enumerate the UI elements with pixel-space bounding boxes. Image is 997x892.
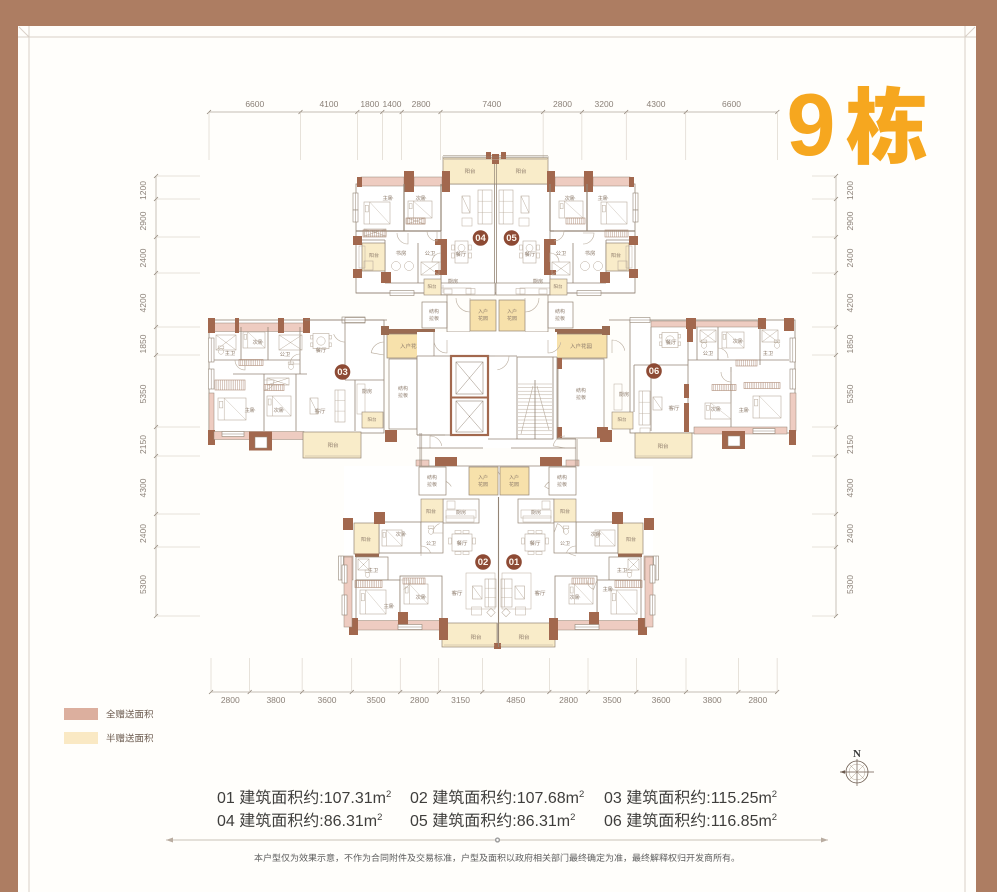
svg-text:主卫: 主卫 bbox=[225, 350, 235, 357]
svg-text:结构: 结构 bbox=[398, 385, 408, 392]
svg-text:05: 05 bbox=[506, 233, 517, 244]
svg-text:2900: 2900 bbox=[138, 211, 148, 230]
svg-text:花园: 花园 bbox=[478, 481, 488, 488]
svg-text:入户: 入户 bbox=[478, 474, 488, 481]
svg-text:主卫: 主卫 bbox=[617, 567, 627, 574]
svg-text:阳台: 阳台 bbox=[560, 508, 570, 515]
svg-text:4300: 4300 bbox=[845, 478, 855, 497]
svg-text:5350: 5350 bbox=[138, 384, 148, 403]
svg-text:2150: 2150 bbox=[845, 435, 855, 454]
svg-text:入户: 入户 bbox=[478, 308, 488, 315]
svg-text:2400: 2400 bbox=[138, 524, 148, 543]
svg-text:餐厅: 餐厅 bbox=[455, 250, 467, 258]
svg-text:1800: 1800 bbox=[360, 99, 379, 109]
svg-text:入户: 入户 bbox=[507, 308, 517, 315]
svg-text:客厅: 客厅 bbox=[534, 589, 546, 597]
svg-text:入户花园: 入户花园 bbox=[570, 342, 593, 350]
svg-text:阳台: 阳台 bbox=[470, 633, 482, 641]
svg-text:阳台: 阳台 bbox=[369, 252, 379, 259]
svg-text:4300: 4300 bbox=[138, 478, 148, 497]
svg-text:3500: 3500 bbox=[603, 695, 622, 705]
svg-text:02: 02 bbox=[478, 557, 489, 568]
svg-text:主卧: 主卧 bbox=[738, 406, 750, 414]
svg-text:花园: 花园 bbox=[509, 481, 519, 488]
svg-text:01: 01 bbox=[509, 557, 520, 568]
svg-text:结构: 结构 bbox=[429, 308, 439, 315]
svg-text:1400: 1400 bbox=[383, 99, 402, 109]
svg-text:4200: 4200 bbox=[138, 293, 148, 312]
svg-text:厨房: 厨房 bbox=[619, 391, 629, 398]
svg-text:阳台: 阳台 bbox=[618, 417, 627, 423]
svg-text:4200: 4200 bbox=[845, 293, 855, 312]
svg-text:阳台: 阳台 bbox=[426, 508, 436, 515]
svg-text:公卫: 公卫 bbox=[426, 540, 436, 547]
svg-text:餐厅: 餐厅 bbox=[315, 346, 327, 354]
svg-text:阳台: 阳台 bbox=[464, 167, 476, 175]
svg-text:3150: 3150 bbox=[451, 695, 470, 705]
svg-text:拉板: 拉板 bbox=[398, 392, 408, 399]
svg-text:1200: 1200 bbox=[845, 181, 855, 200]
svg-text:阳台: 阳台 bbox=[327, 441, 339, 449]
svg-text:1850: 1850 bbox=[138, 334, 148, 353]
svg-text:7400: 7400 bbox=[482, 99, 501, 109]
svg-text:主卧: 主卧 bbox=[602, 585, 614, 593]
svg-text:N: N bbox=[853, 748, 861, 760]
svg-text:拉板: 拉板 bbox=[557, 481, 567, 488]
svg-text:1200: 1200 bbox=[138, 181, 148, 200]
svg-text:2150: 2150 bbox=[138, 435, 148, 454]
svg-text:1850: 1850 bbox=[845, 334, 855, 353]
svg-text:阳台: 阳台 bbox=[626, 536, 636, 543]
svg-text:阳台: 阳台 bbox=[368, 417, 377, 423]
svg-text:06: 06 bbox=[649, 366, 660, 377]
svg-text:3800: 3800 bbox=[266, 695, 285, 705]
svg-text:04: 04 bbox=[475, 233, 486, 244]
svg-text:书房: 书房 bbox=[395, 249, 407, 257]
svg-text:次卧: 次卧 bbox=[273, 406, 285, 414]
svg-text:主卧: 主卧 bbox=[383, 602, 395, 610]
svg-text:入户: 入户 bbox=[509, 474, 519, 481]
svg-text:书房: 书房 bbox=[584, 249, 596, 257]
svg-text:次卧: 次卧 bbox=[732, 337, 744, 345]
svg-text:拉板: 拉板 bbox=[427, 481, 437, 488]
svg-text:全赠送面积: 全赠送面积 bbox=[106, 707, 154, 721]
svg-text:2800: 2800 bbox=[748, 695, 767, 705]
svg-text:3800: 3800 bbox=[703, 695, 722, 705]
svg-text:公卫: 公卫 bbox=[703, 350, 713, 357]
svg-text:2800: 2800 bbox=[221, 695, 240, 705]
svg-text:公卫: 公卫 bbox=[556, 250, 566, 257]
svg-text:厨房: 厨房 bbox=[448, 278, 458, 285]
svg-text:阳台: 阳台 bbox=[611, 252, 621, 259]
svg-text:餐厅: 餐厅 bbox=[456, 539, 468, 547]
svg-text:主卧: 主卧 bbox=[382, 194, 394, 202]
svg-text:9: 9 bbox=[787, 75, 836, 174]
svg-text:花园: 花园 bbox=[507, 315, 517, 322]
svg-text:2900: 2900 bbox=[845, 211, 855, 230]
svg-text:5350: 5350 bbox=[845, 384, 855, 403]
svg-text:2800: 2800 bbox=[559, 695, 578, 705]
svg-text:2400: 2400 bbox=[138, 248, 148, 267]
svg-text:次卧: 次卧 bbox=[252, 338, 264, 346]
svg-text:厨房: 厨房 bbox=[362, 388, 372, 395]
svg-text:次卧: 次卧 bbox=[569, 593, 581, 601]
svg-text:餐厅: 餐厅 bbox=[529, 539, 541, 547]
svg-text:3500: 3500 bbox=[367, 695, 386, 705]
svg-text:阳台: 阳台 bbox=[518, 633, 530, 641]
svg-text:次卧: 次卧 bbox=[395, 530, 407, 538]
svg-text:6600: 6600 bbox=[722, 99, 741, 109]
svg-text:3200: 3200 bbox=[595, 99, 614, 109]
svg-text:5300: 5300 bbox=[845, 575, 855, 594]
svg-text:主卫: 主卫 bbox=[763, 350, 773, 357]
svg-text:花园: 花园 bbox=[478, 315, 488, 322]
svg-text:客厅: 客厅 bbox=[668, 404, 680, 412]
svg-text:结构: 结构 bbox=[427, 474, 437, 481]
svg-text:2400: 2400 bbox=[845, 524, 855, 543]
svg-text:5300: 5300 bbox=[138, 575, 148, 594]
svg-text:3600: 3600 bbox=[318, 695, 337, 705]
svg-text:本户型仅为效果示意，不作为合同附件及交易标准，户型及面积以政: 本户型仅为效果示意，不作为合同附件及交易标准，户型及面积以政府相关部门最终确定为… bbox=[254, 851, 740, 864]
svg-text:阳台: 阳台 bbox=[554, 284, 563, 290]
svg-text:4100: 4100 bbox=[319, 99, 338, 109]
svg-text:公卫: 公卫 bbox=[560, 540, 570, 547]
svg-text:6600: 6600 bbox=[245, 99, 264, 109]
svg-text:2800: 2800 bbox=[553, 99, 572, 109]
svg-text:公卫: 公卫 bbox=[425, 250, 435, 257]
svg-text:结构: 结构 bbox=[576, 387, 586, 394]
svg-text:客厅: 客厅 bbox=[451, 589, 463, 597]
svg-text:4300: 4300 bbox=[647, 99, 666, 109]
svg-text:主卧: 主卧 bbox=[597, 194, 609, 202]
svg-text:餐厅: 餐厅 bbox=[665, 338, 677, 346]
svg-text:栋: 栋 bbox=[846, 61, 929, 181]
svg-text:拉板: 拉板 bbox=[555, 315, 565, 322]
svg-text:公卫: 公卫 bbox=[280, 351, 290, 358]
svg-text:拉板: 拉板 bbox=[429, 315, 439, 322]
svg-text:阳台: 阳台 bbox=[361, 536, 371, 543]
svg-text:2800: 2800 bbox=[410, 695, 429, 705]
svg-text:结构: 结构 bbox=[557, 474, 567, 481]
svg-text:拉板: 拉板 bbox=[576, 394, 586, 401]
svg-text:阳台: 阳台 bbox=[515, 167, 527, 175]
svg-text:厨房: 厨房 bbox=[533, 278, 543, 285]
svg-text:阳台: 阳台 bbox=[428, 284, 437, 290]
svg-text:半赠送面积: 半赠送面积 bbox=[106, 731, 154, 745]
svg-text:3600: 3600 bbox=[652, 695, 671, 705]
svg-text:2400: 2400 bbox=[845, 248, 855, 267]
svg-text:2800: 2800 bbox=[412, 99, 431, 109]
svg-text:4850: 4850 bbox=[506, 695, 525, 705]
svg-text:阳台: 阳台 bbox=[657, 442, 669, 450]
svg-text:03: 03 bbox=[337, 367, 348, 378]
svg-text:次卧: 次卧 bbox=[710, 405, 722, 413]
svg-text:结构: 结构 bbox=[555, 308, 565, 315]
